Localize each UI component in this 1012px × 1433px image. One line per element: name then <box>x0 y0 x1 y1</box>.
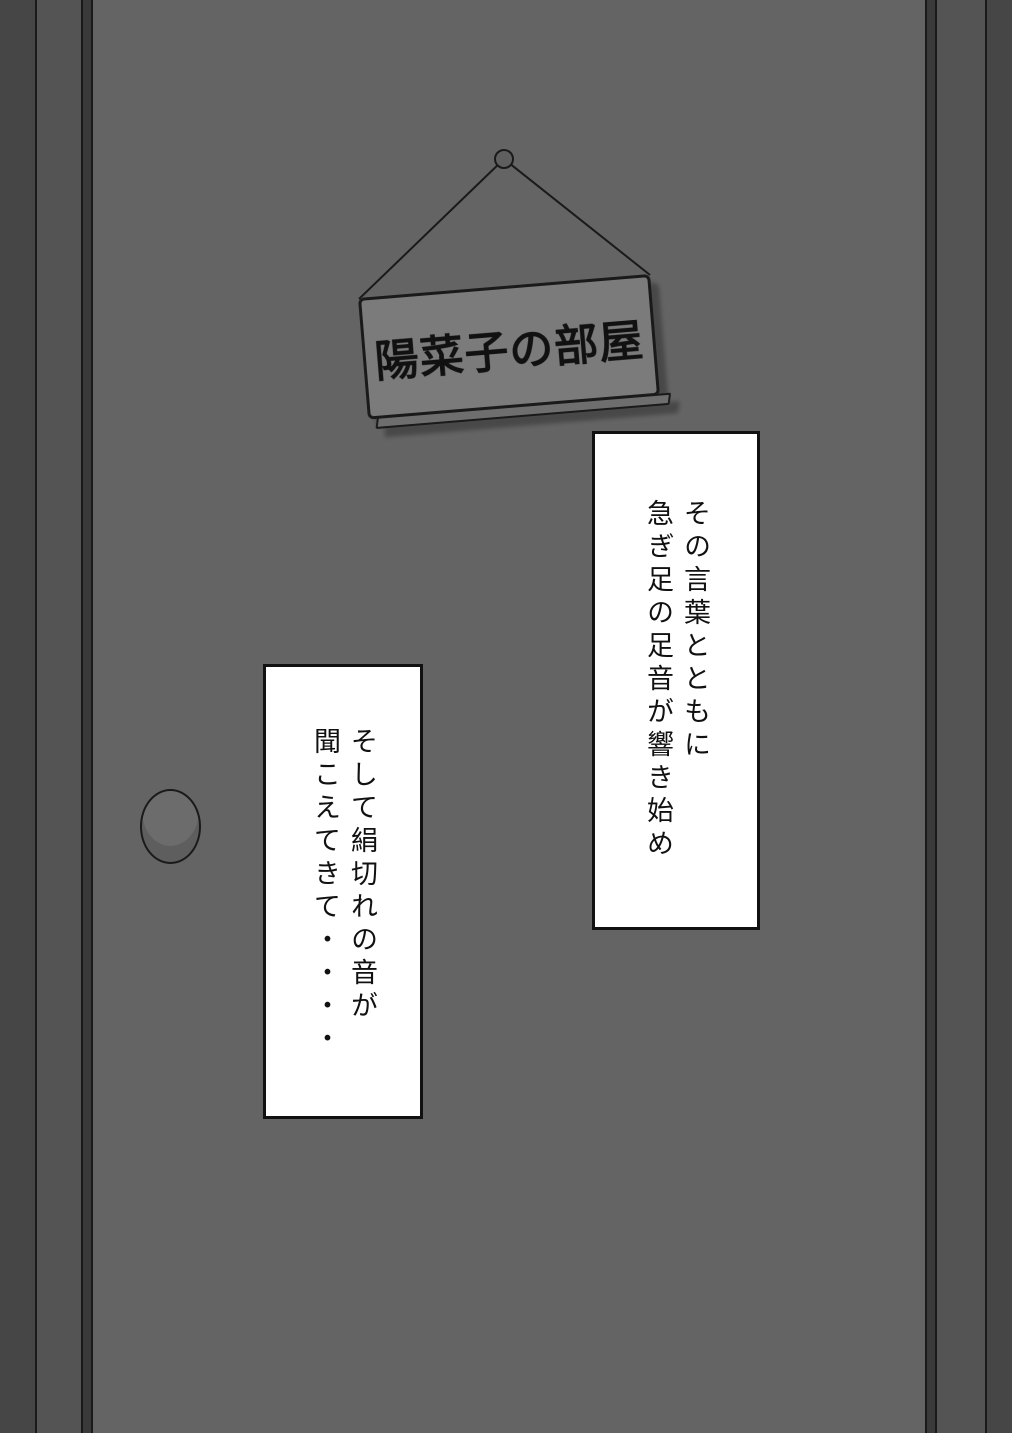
hanging-pin-icon <box>495 150 513 168</box>
narration-line: そして絹切れの音が <box>343 727 380 1057</box>
door-frame-left <box>37 0 81 1433</box>
door-knob <box>140 789 201 864</box>
wall-right <box>987 0 1012 1433</box>
door-frame-right <box>937 0 985 1433</box>
narration-text-1: その言葉とともに 急ぎ足の足音が響き始め <box>639 499 713 862</box>
narration-line: 聞こえてきて・・・・ <box>306 727 343 1057</box>
door-groove-left <box>83 0 91 1433</box>
wall-left <box>0 0 35 1433</box>
sign-string-left <box>359 159 504 299</box>
narration-text-2: そして絹切れの音が 聞こえてきて・・・・ <box>306 727 380 1057</box>
room-name-sign: 陽菜子の部屋 <box>358 274 660 420</box>
door-groove-right <box>927 0 935 1433</box>
sign-plate: 陽菜子の部屋 <box>358 274 660 420</box>
sign-string-right <box>504 159 650 275</box>
narration-line: 急ぎ足の足音が響き始め <box>639 499 676 862</box>
narration-box-2: そして絹切れの音が 聞こえてきて・・・・ <box>263 664 423 1119</box>
narration-line: その言葉とともに <box>676 499 713 862</box>
room-name-label: 陽菜子の部屋 <box>372 304 646 390</box>
narration-box-1: その言葉とともに 急ぎ足の足音が響き始め <box>592 431 760 930</box>
